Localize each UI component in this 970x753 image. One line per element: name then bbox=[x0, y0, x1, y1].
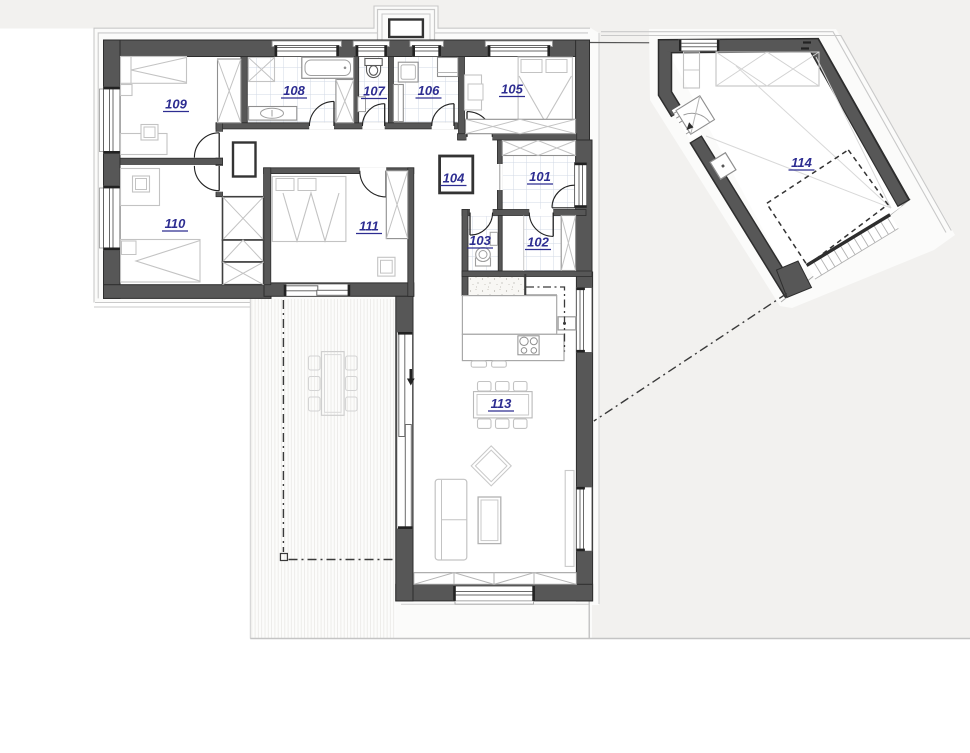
svg-text:106: 106 bbox=[418, 83, 440, 98]
svg-text:114: 114 bbox=[791, 155, 812, 170]
svg-text:102: 102 bbox=[527, 235, 549, 250]
svg-text:105: 105 bbox=[501, 82, 523, 97]
svg-text:104: 104 bbox=[443, 171, 465, 186]
svg-text:103: 103 bbox=[469, 233, 491, 248]
svg-text:110: 110 bbox=[165, 216, 186, 231]
svg-text:113: 113 bbox=[491, 396, 512, 411]
svg-text:108: 108 bbox=[283, 83, 305, 98]
svg-text:101: 101 bbox=[529, 169, 551, 184]
svg-text:109: 109 bbox=[165, 97, 187, 112]
svg-text:107: 107 bbox=[363, 84, 385, 99]
svg-text:111: 111 bbox=[359, 219, 379, 234]
